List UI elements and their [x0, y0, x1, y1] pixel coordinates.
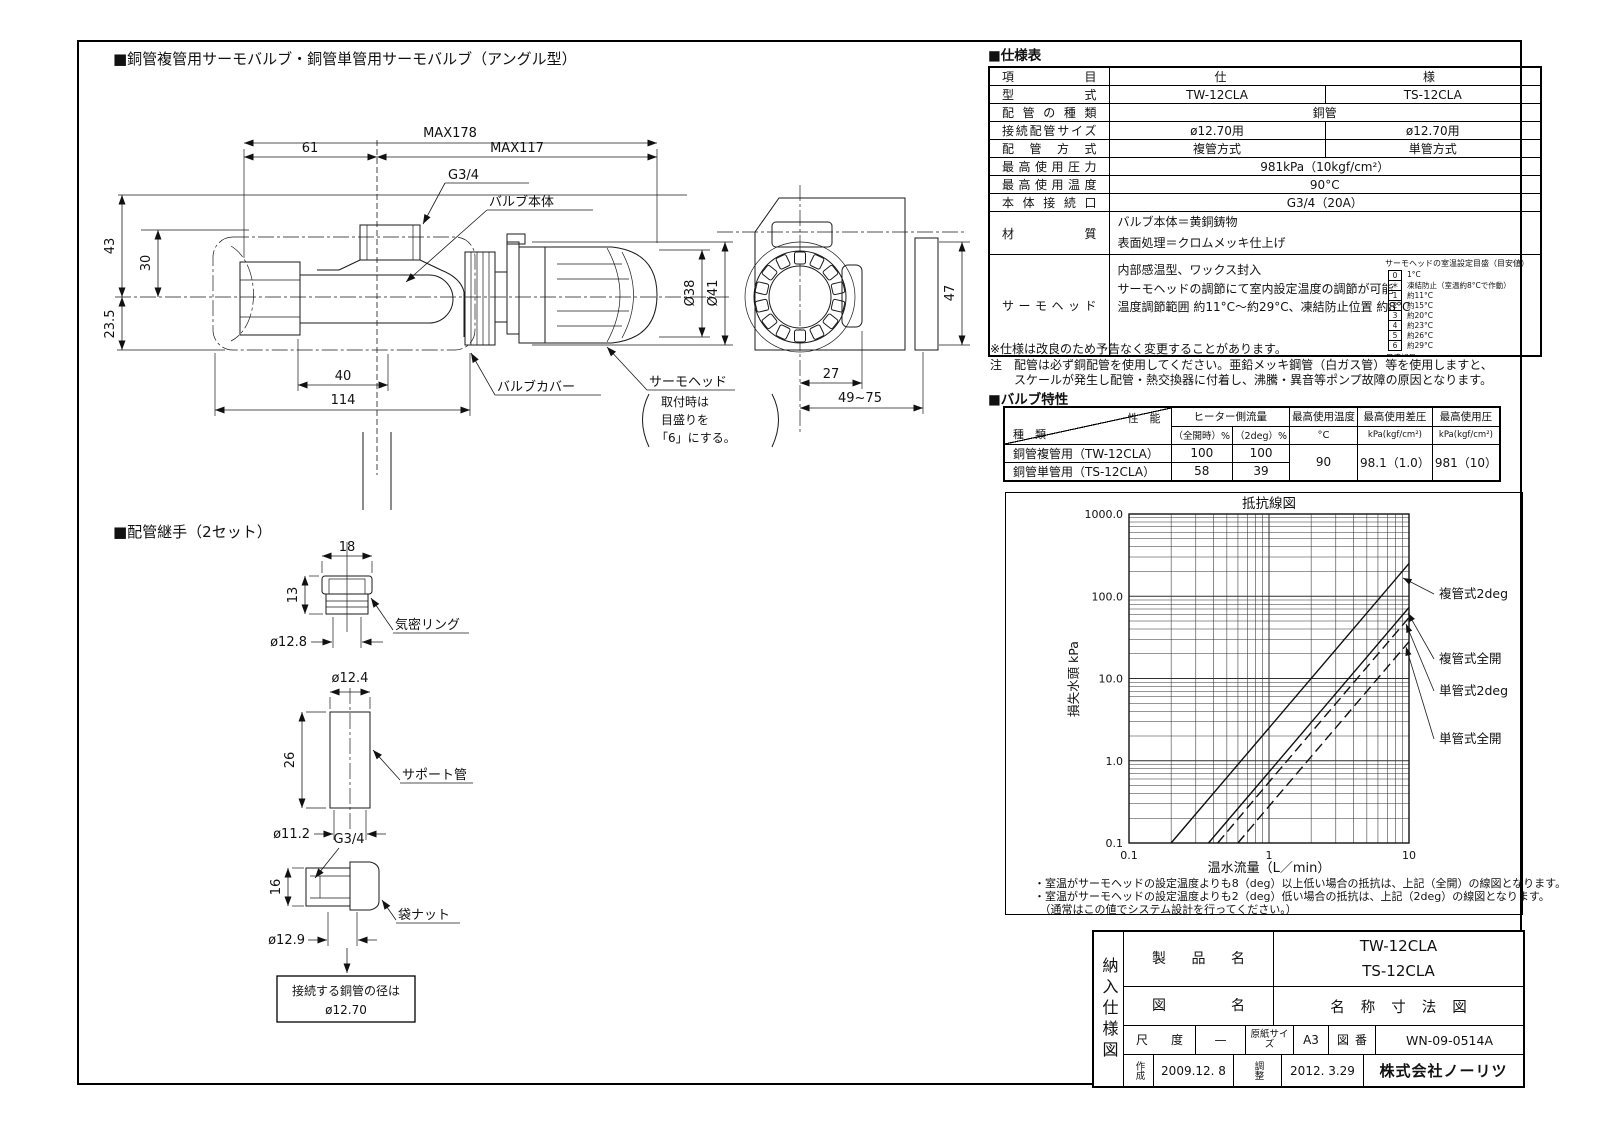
spec-header-item: 項目 — [989, 67, 1109, 86]
fittings: ■配管継手（2セット） 18 13 ø12.8 気密リング ø12.4 — [113, 523, 473, 1022]
vchar-temp-unit: °C — [1290, 426, 1358, 444]
thermo-lines: 内部感温型、ワックス封入 サーモヘッドの調節にて室内設定温度の調節が可能 温度調… — [1118, 261, 1411, 317]
front-side-port — [842, 265, 862, 327]
top-port — [360, 225, 420, 260]
label-g34: G3/4 — [448, 168, 479, 183]
chart-ylabel: 損失水頭 kPa — [1066, 641, 1081, 717]
inlet-hex-nut — [240, 262, 300, 335]
material-line: バルブ本体＝黄銅鋳物 — [1110, 212, 1541, 233]
spec-row-label: 配管方式 — [989, 140, 1109, 158]
section-title-fittings: ■配管継手（2セット） — [113, 523, 272, 541]
spec-cell: TS-12CLA — [1325, 86, 1541, 104]
drawing-name-value: 名称寸法図 — [1274, 987, 1523, 1025]
dim-dia12-9: ø12.9 — [268, 933, 305, 948]
svg-text:0.1: 0.1 — [1120, 849, 1138, 862]
adjusted-label: 調整 — [1234, 1055, 1282, 1086]
legend-entry: 複管式全開 — [1439, 651, 1502, 666]
dim-dia11-2: ø11.2 — [273, 827, 310, 842]
pipe-note-line1: 接続する銅管の径は — [292, 983, 400, 998]
dim-dia41: Ø41 — [706, 280, 721, 307]
label-support-pipe: サポート管 — [402, 768, 467, 783]
vchar-flow-sub-a: （全開時）% — [1171, 426, 1233, 444]
svg-text:1000.0: 1000.0 — [1085, 508, 1124, 521]
dim-47: 47 — [943, 285, 958, 302]
spec-table: 項目 仕様 型式 TW-12CLA TS-12CLA 配管の種類 銅管 接続配管… — [988, 66, 1542, 357]
vchar-diagonal-cell: 性 能 種 類 — [1004, 407, 1171, 444]
label-airtight-ring: 気密リング — [395, 617, 460, 633]
dim-dia12-8: ø12.8 — [270, 635, 307, 650]
spec-row-label: 本体接続口 — [989, 194, 1109, 212]
svg-text:100.0: 100.0 — [1092, 590, 1124, 603]
created-date: 2009.12. 8 — [1154, 1055, 1234, 1086]
vchar-flow-header: ヒーター側流量 — [1171, 407, 1290, 426]
svg-text:1.0: 1.0 — [1106, 755, 1124, 768]
label-valve-body: バルブ本体 — [489, 194, 554, 210]
pipe-note-line2: ø12.70 — [325, 1003, 367, 1017]
head-bracket — [507, 242, 519, 334]
spec-thermo-label: サーモヘッド — [989, 255, 1109, 357]
resistance-chart: 抵抗線図 1000.0100.010.01.00.10.1110 損失水頭 kP… — [1006, 493, 1521, 913]
head-note-line2: 目盛りを — [661, 412, 709, 427]
drawing-name-label: 図名 — [1124, 987, 1274, 1025]
scale-label: 尺度 — [1124, 1026, 1196, 1054]
head-note-line3: 「6」にする。 — [656, 431, 736, 445]
head-cap — [519, 247, 545, 343]
scale-box-grid: 01°C ＊凍結防止（室温約8°Cで作動） 1約11°C 2約15°C 3約20… — [1388, 270, 1537, 351]
dim-27: 27 — [823, 367, 840, 382]
dim-max178: MAX178 — [423, 126, 477, 141]
title-block-side-label: 納入仕様図 — [1094, 932, 1124, 1086]
vchar-dp-value: 98.1（1.0） — [1358, 444, 1433, 481]
vchar-title: ■バルブ特性 — [988, 388, 1068, 408]
label-fitting-g34: G3/4 — [334, 832, 365, 847]
adjusted-date: 2012. 3.29 — [1282, 1055, 1364, 1086]
label-thermo-head: サーモヘッド — [649, 375, 727, 390]
knurled-nut — [465, 252, 495, 345]
thermo-head-body — [545, 247, 657, 343]
dim-18: 18 — [339, 540, 356, 555]
dim-43: 43 — [103, 238, 118, 255]
dim-114: 114 — [331, 393, 356, 408]
svg-text:10: 10 — [1402, 849, 1416, 862]
side-view — [115, 140, 729, 510]
dim-13: 13 — [286, 587, 301, 604]
dim-26: 26 — [283, 752, 298, 769]
product-name-label: 製品名 — [1124, 932, 1274, 986]
section-title-valve: ■銅管複管用サーモバルブ・銅管単管用サーモバルブ（アングル型） — [113, 50, 577, 68]
vchar-temp-header: 最高使用温度 — [1290, 407, 1358, 426]
chart-tick-labels: 1000.0100.010.01.00.10.1110 — [1085, 508, 1417, 862]
valve-cover-outline — [213, 237, 475, 350]
vchar-row-name: 銅管単管用（TS-12CLA） — [1004, 462, 1171, 481]
dim-49-75: 49~75 — [838, 391, 882, 406]
chart-xlabel: 温水流量（L／min） — [1208, 861, 1331, 876]
spec-row-label: 接続配管サイズ — [989, 122, 1109, 140]
engineering-drawing: ■銅管複管用サーモバルブ・銅管単管用サーモバルブ（アングル型） — [77, 40, 985, 1088]
resistance-chart-box: 抵抗線図 1000.0100.010.01.00.10.1110 損失水頭 kP… — [1005, 492, 1523, 915]
dim-16: 16 — [269, 879, 284, 896]
valve-characteristics-table: 性 能 種 類 ヒーター側流量 最高使用温度 最高使用差圧 最高使用圧 （全開時… — [1003, 406, 1501, 482]
spec-material-cell: バルブ本体＝黄銅鋳物 表面処理＝クロムメッキ仕上げ — [1109, 212, 1541, 255]
scale-value: — — [1196, 1026, 1246, 1054]
vchar-row-name: 銅管複管用（TW-12CLA） — [1004, 444, 1171, 462]
spec-row-label: 最高使用圧力 — [989, 158, 1109, 176]
spec-cell: 複管方式 — [1109, 140, 1325, 158]
spec-table-title: ■仕様表 — [988, 44, 1041, 64]
label-cap-nut: 袋ナット — [398, 908, 450, 923]
chart-legend: 複管式2deg 複管式全開 単管式2deg 単管式全開 — [1403, 578, 1508, 746]
material-line: 表面処理＝クロムメッキ仕上げ — [1110, 233, 1541, 254]
dim-dia12-4: ø12.4 — [332, 671, 369, 686]
spec-cell: 銅管 — [1109, 104, 1541, 122]
front-end-plate — [915, 238, 938, 350]
front-view-dimensions: 47 27 49~75 — [800, 242, 970, 414]
spec-thermo-cell: 内部感温型、ワックス封入 サーモヘッドの調節にて室内設定温度の調節が可能 温度調… — [1109, 255, 1541, 357]
head-note-line1: 取付時は — [661, 395, 709, 409]
cap-nut-socket — [306, 868, 350, 906]
dim-max117: MAX117 — [490, 141, 544, 156]
label-valve-cover: バルブカバー — [497, 379, 575, 395]
created-label: 作成 — [1124, 1055, 1154, 1086]
vchar-flow-sub-b: （2deg）% — [1233, 426, 1290, 444]
scale-box-title: サーモヘッドの室温設定目盛（目安値） — [1385, 258, 1537, 269]
dim-23-5: 23.5 — [103, 310, 118, 339]
vchar-dp-header: 最高使用差圧 — [1358, 407, 1433, 426]
spec-cell: ø12.70用 — [1325, 122, 1541, 140]
paper-size-label: 原紙サイズ — [1246, 1026, 1294, 1054]
spec-row-label: 最高使用温度 — [989, 176, 1109, 194]
spec-cell: 90°C — [1109, 176, 1541, 194]
spec-material-label: 材質 — [989, 212, 1109, 255]
vchar-p-value: 981（10） — [1432, 444, 1500, 481]
spec-cell: G3/4（20A） — [1109, 194, 1541, 212]
spec-cell: ø12.70用 — [1109, 122, 1325, 140]
title-block: 納入仕様図 製品名 TW-12CLA TS-12CLA 図名 名称寸法図 尺度 … — [1092, 930, 1525, 1088]
chart-title: 抵抗線図 — [1242, 496, 1296, 512]
legend-entry: 単管式2deg — [1439, 683, 1508, 698]
product-name-value: TW-12CLA TS-12CLA — [1274, 932, 1523, 986]
vchar-temp-value: 90 — [1290, 444, 1358, 481]
legend-entry: 単管式全開 — [1439, 731, 1502, 746]
drawing-number-label: 図番 — [1329, 1026, 1376, 1054]
dim-40: 40 — [335, 369, 352, 384]
drawing-number-value: WN-09-0514A — [1376, 1026, 1523, 1054]
spec-cell: TW-12CLA — [1109, 86, 1325, 104]
spec-cell: 単管方式 — [1325, 140, 1541, 158]
side-view-dimensions: MAX178 61 MAX117 43 30 23.5 40 114 Ø38 — [103, 126, 779, 447]
company-logo: 株式会社ノーリツ — [1364, 1055, 1523, 1086]
chart-grid — [1129, 514, 1409, 843]
dim-61: 61 — [302, 141, 319, 156]
chart-notes: ・室温がサーモヘッドの設定温度よりも8（deg）以上低い場合の抵抗は、上記（全開… — [1034, 877, 1566, 916]
legend-entry: 複管式2deg — [1439, 586, 1508, 601]
spec-notes: ※仕様は改良のため予告なく変更することがあります。注 配管は必ず銅配管を使用して… — [990, 342, 1493, 389]
inlet-pipe — [300, 275, 453, 323]
dim-30: 30 — [139, 255, 154, 272]
svg-text:10.0: 10.0 — [1099, 673, 1124, 686]
dim-dia38: Ø38 — [683, 280, 698, 307]
paper-size-value: A3 — [1294, 1026, 1329, 1054]
spec-header-spec: 仕様 — [1109, 67, 1541, 86]
cap-nut-hex — [350, 862, 379, 910]
spec-cell: 981kPa（10kgf/cm²） — [1109, 158, 1541, 176]
vchar-dp-unit: kPa(kgf/cm²) — [1358, 426, 1433, 444]
vchar-p-header: 最高使用圧 — [1432, 407, 1500, 426]
front-top-tab — [772, 222, 832, 247]
spec-row-label: 型式 — [989, 86, 1109, 104]
spec-row-label: 配管の種類 — [989, 104, 1109, 122]
vchar-p-unit: kPa(kgf/cm²) — [1432, 426, 1500, 444]
